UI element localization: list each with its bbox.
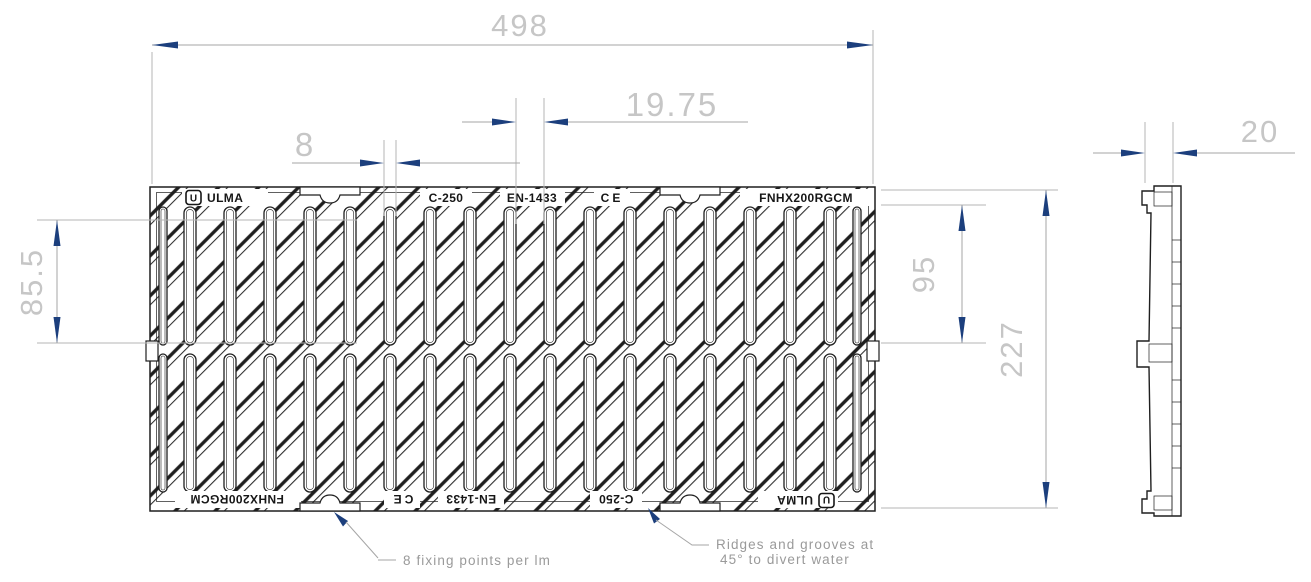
arrow-up-icon (54, 220, 61, 246)
standard-label-bottom: EN-1433 (446, 492, 496, 506)
ce-mark-bottom: CE (391, 492, 414, 506)
arrow-down-icon (54, 317, 61, 343)
standard-label: EN-1433 (507, 191, 557, 205)
ce-mark: CE (601, 191, 624, 205)
arrow-left-icon (152, 42, 178, 49)
dimension-thickness: 20 (1093, 114, 1295, 183)
dimension-slot-length: 95 (881, 205, 986, 343)
dim-slot-width-value: 8 (295, 126, 315, 163)
slot-row-bottom (159, 354, 861, 492)
side-notch-left (146, 341, 158, 361)
side-view (1137, 186, 1181, 516)
arrow-right-icon (360, 160, 384, 167)
dimension-overall-depth: 227 (881, 190, 1058, 508)
leader-arrow-icon (334, 512, 348, 527)
dim-thickness-value: 20 (1241, 114, 1279, 149)
arrow-up-icon (1043, 190, 1050, 216)
plan-view: U ULMA C-250 EN-1433 CE FNHX200RGCM FNHX… (146, 187, 879, 511)
dim-slot-length-value: 95 (906, 255, 941, 293)
leader-line (656, 520, 709, 545)
arrow-down-icon (959, 317, 966, 343)
arrow-right-icon (847, 42, 873, 49)
arrow-down-icon (1043, 482, 1050, 508)
ulma-logo-letter-bottom: U (823, 494, 830, 505)
arrow-left-icon (544, 119, 568, 126)
arrow-right-icon (1121, 150, 1145, 157)
leader-line (346, 522, 396, 560)
dim-overall-width-value: 498 (491, 8, 549, 43)
slot-row-top (159, 207, 861, 345)
arrow-left-icon (396, 160, 420, 167)
side-profile-outline (1137, 186, 1181, 516)
side-notch-right (867, 341, 879, 361)
dim-groove-spacing-value: 19.75 (626, 86, 719, 123)
product-code-label: FNHX200RGCM (759, 191, 853, 205)
brand-label: ULMA (207, 191, 243, 205)
arrow-left-icon (1173, 150, 1197, 157)
technical-drawing: U ULMA C-250 EN-1433 CE FNHX200RGCM FNHX… (0, 0, 1311, 582)
brand-label-bottom: ULMA (777, 493, 813, 507)
annotation-ridges: Ridges and grooves at 45° to divert wate… (648, 508, 874, 567)
annotation-fixing-points: 8 fixing points per lm (334, 512, 551, 568)
load-class-label: C-250 (429, 191, 464, 205)
ulma-logo-letter: U (190, 194, 197, 205)
load-class-label-bottom: C-250 (599, 492, 634, 506)
drawing-canvas: U ULMA C-250 EN-1433 CE FNHX200RGCM FNHX… (0, 0, 1311, 582)
ridges-note-line2: 45° to divert water (720, 552, 850, 567)
arrow-right-icon (492, 119, 516, 126)
dimension-overall-width: 498 (152, 8, 873, 184)
ridges-note-line1: Ridges and grooves at (716, 537, 874, 552)
dim-overall-depth-value: 227 (994, 320, 1029, 378)
fixing-points-note: 8 fixing points per lm (403, 553, 551, 568)
dim-slot-offset-left-value: 85.5 (14, 248, 49, 316)
product-code-label-bottom: FNHX200RGCM (190, 492, 284, 506)
arrow-up-icon (959, 205, 966, 231)
